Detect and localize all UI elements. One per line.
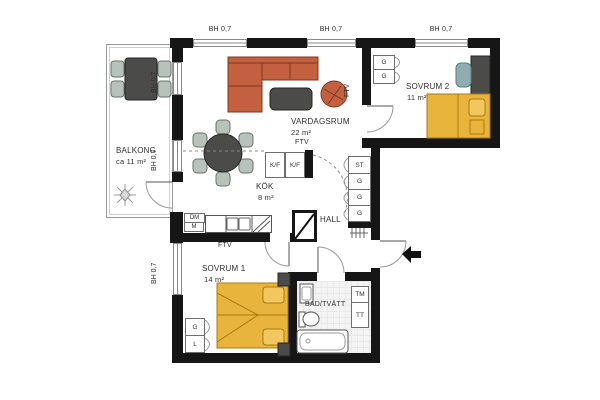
door-sovrum1 [265, 242, 289, 266]
window-label: BH 0,7 [150, 150, 159, 171]
ventilation-shaft [292, 210, 317, 242]
dishwasher-label: DM [190, 215, 199, 221]
room-label-sovrum2: SOVRUM 2 [406, 82, 449, 91]
sovrum1-closet-l: L [185, 335, 205, 353]
dryer-box: TT [351, 302, 369, 328]
tv-outlet-label: FTV [218, 242, 232, 249]
window-label: BH 0,7 [306, 26, 356, 33]
radiator [350, 228, 368, 238]
closet-label: G [357, 194, 362, 201]
wall [371, 268, 380, 363]
closet-label: G [192, 324, 197, 331]
fridge-freezer-box: K/F [265, 152, 285, 178]
hall-closet-g: G [348, 173, 371, 190]
window [415, 39, 468, 47]
closet-label: G [357, 178, 362, 185]
microwave-box: M [184, 222, 204, 232]
wall [172, 295, 183, 353]
room-label-kok: KÖK [256, 182, 274, 191]
wall [371, 138, 380, 240]
room-area-sovrum2: 11 m² [407, 93, 427, 102]
tv-outlet-label: FTV [343, 84, 352, 97]
dining-chairs [193, 120, 253, 186]
wall [356, 38, 415, 48]
sovrum2-closet-g: G [373, 69, 395, 84]
room-area-sovrum1: 14 m² [204, 275, 224, 284]
wall [172, 172, 183, 182]
washing-machine-label: TM [355, 291, 364, 298]
microwave-label: M [192, 224, 197, 230]
sovrum2-closet-g: G [373, 55, 395, 70]
wall [362, 48, 371, 105]
sofa [228, 57, 318, 112]
floor-plan: DM M K/F K/F ST G G G G G G L TM TT [0, 0, 600, 400]
wall [288, 272, 297, 363]
closet-label: G [357, 210, 362, 217]
closet-label: L [193, 341, 197, 348]
washing-machine-box: TM [351, 286, 369, 303]
door-bathroom [318, 247, 344, 273]
wall [172, 38, 183, 62]
wall [172, 95, 183, 140]
closet-label: ST [355, 162, 363, 169]
dryer-label: TT [356, 312, 364, 319]
bed-sovrum2 [427, 94, 490, 138]
fridge-freezer-label: K/F [290, 162, 300, 169]
wall [345, 272, 380, 281]
bed-sovrum1 [217, 283, 288, 348]
window-label: BH 0,7 [150, 263, 159, 284]
tv-outlet-label: FTV [295, 139, 309, 146]
kitchen-counter [205, 215, 272, 233]
room-label-vardagsrum: VARDAGSRUM [291, 117, 350, 126]
room-area-balkong: ca 11 m² [116, 157, 146, 166]
window-label: BH 0,7 [150, 72, 159, 93]
room-label-sovrum1: SOVRUM 1 [202, 264, 245, 273]
wall [490, 38, 500, 148]
room-area-vardagsrum: 22 m² [291, 128, 311, 137]
wall [348, 222, 371, 228]
entrance-arrow-icon [402, 246, 421, 263]
balcony-railing-inner [109, 47, 170, 215]
coffee-table [270, 88, 312, 110]
window [193, 39, 247, 47]
hall-closet-g: G [348, 189, 371, 206]
desk-chair [456, 63, 471, 87]
wall [362, 138, 500, 148]
fridge-freezer-label: K/F [270, 162, 280, 169]
window [173, 62, 182, 95]
door-sovrum2 [367, 106, 393, 132]
window [307, 39, 356, 47]
wall [247, 38, 307, 48]
wall [172, 233, 270, 242]
window [173, 140, 182, 172]
desk [471, 56, 490, 97]
room-label-bad-tvatt: BAD/TVÄTT [305, 301, 345, 308]
hall-closet-st: ST [348, 156, 371, 174]
window [173, 243, 182, 295]
closet-label: G [381, 59, 386, 66]
fridge-freezer-box: K/F [285, 152, 305, 178]
window-label: BH 0,7 [416, 26, 466, 33]
window-label: BH 0,7 [195, 26, 245, 33]
closet-label: G [381, 73, 386, 80]
door-entrance [380, 241, 406, 267]
hall-closet-g: G [348, 205, 371, 222]
dining-table [204, 134, 242, 172]
room-label-hall: HALL [320, 215, 341, 224]
sovrum1-closet-g: G [185, 318, 205, 336]
wall [305, 150, 313, 178]
room-area-kok: 8 m² [258, 193, 274, 202]
wall [172, 353, 380, 363]
